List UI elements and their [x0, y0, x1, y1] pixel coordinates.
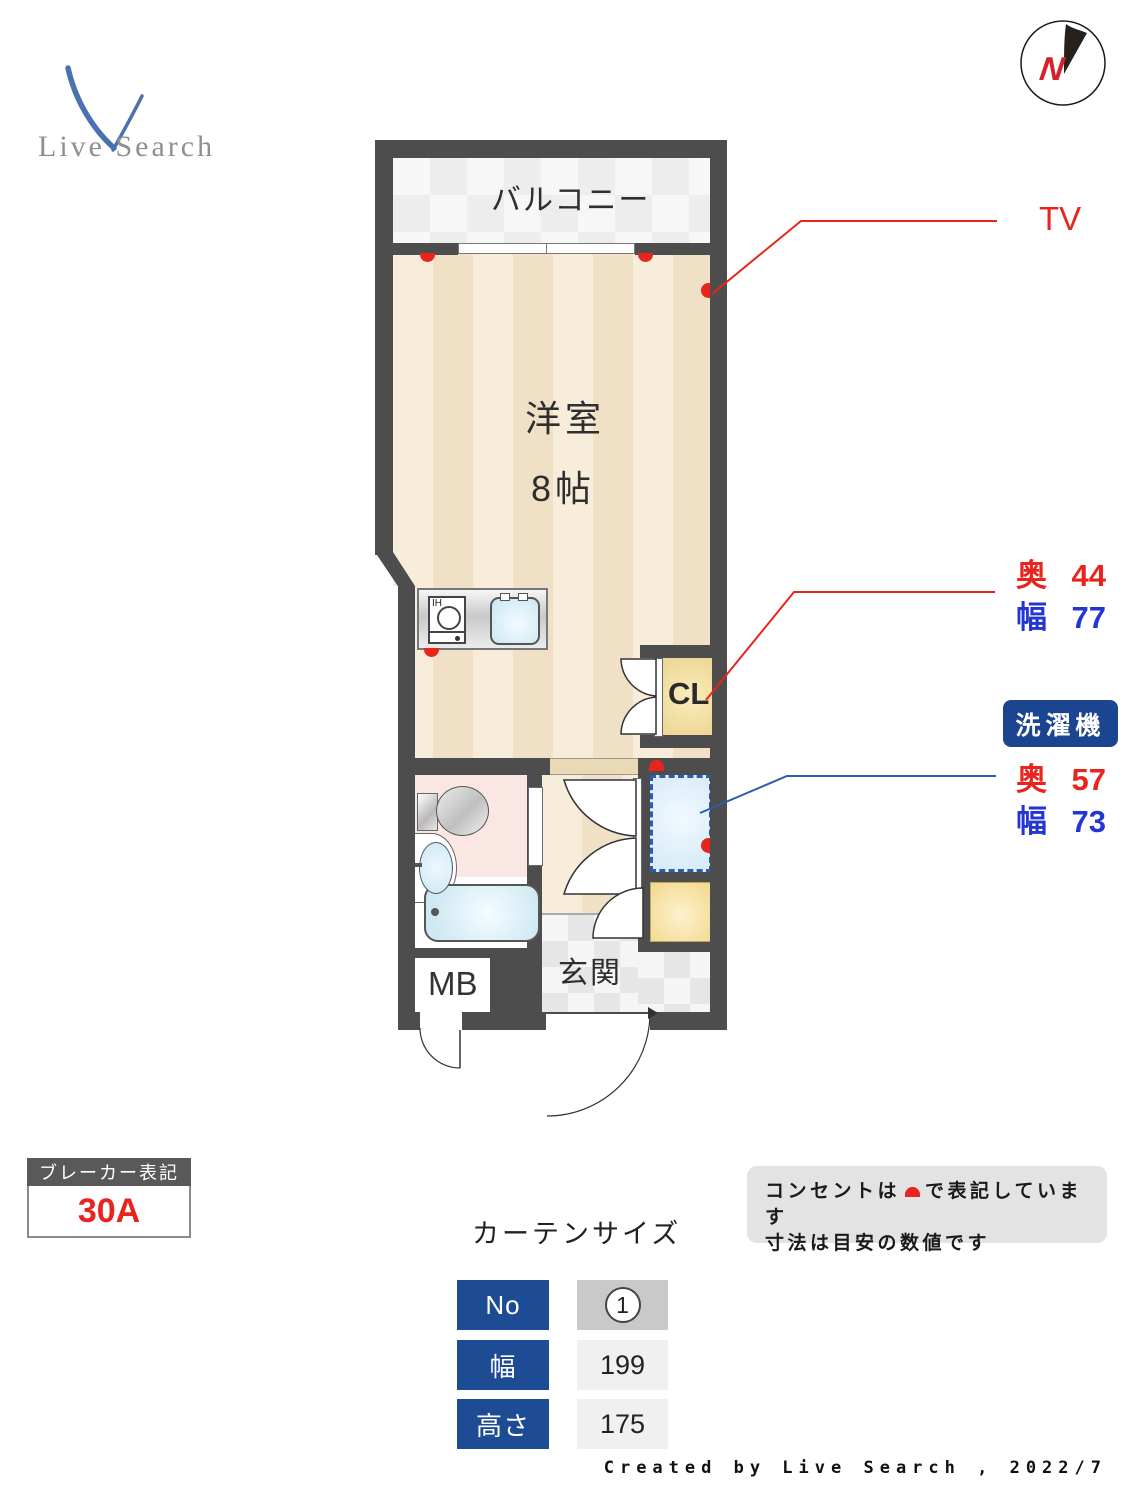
hallway-door-jamb — [633, 778, 642, 898]
toilet-tank — [417, 793, 438, 831]
note-line1-pre: コンセントは — [765, 1181, 900, 1202]
credit-line: Created by Live Search , 2022/7 — [604, 1458, 1107, 1478]
ih-label: IH — [432, 598, 442, 609]
meter-box-label: MB — [428, 965, 478, 1003]
floor-plan-page: Live Search N — [0, 0, 1125, 1500]
cased-opening — [550, 758, 638, 775]
compass: N — [1018, 18, 1108, 108]
washer-depth-label: 奥 — [1016, 764, 1047, 795]
curtain-row-no-label: No — [457, 1280, 549, 1330]
closet-door-jamb — [654, 658, 663, 737]
wall-bottom-2 — [462, 1012, 546, 1030]
outlet-icon — [649, 760, 664, 771]
ih-stove: IH — [428, 596, 466, 644]
washer-outlet-icon — [701, 838, 710, 853]
curtain-row-width-value: 199 — [577, 1340, 668, 1390]
closet-depth-row: 奥 44 — [1016, 560, 1106, 591]
wall-closet-top — [640, 645, 727, 658]
room-name-label: 洋室 — [525, 390, 605, 442]
washer-depth-value: 57 — [1072, 764, 1106, 795]
tv-label: TV — [1039, 200, 1081, 238]
entrance-label: 玄関 — [558, 948, 622, 992]
balcony-window-center-tick — [546, 243, 547, 254]
legend-note-line1: コンセントはで表記しています — [765, 1179, 1089, 1231]
basin-tap-icon — [415, 863, 422, 867]
legend-note-line2: 寸法は目安の数値です — [765, 1231, 1089, 1257]
bathtub-drain-icon — [431, 908, 439, 916]
front-door-swing-icon — [547, 1013, 650, 1116]
live-search-logo: Live Search — [36, 60, 246, 170]
washer-depth-row: 奥 57 — [1016, 764, 1106, 795]
entrance-step-line — [542, 913, 638, 915]
outlet-legend-icon — [905, 1187, 920, 1197]
hallway-floor — [542, 775, 638, 915]
curtain-row-width-label: 幅 — [457, 1340, 549, 1390]
sink-tap-icon — [500, 593, 510, 601]
wall-mb-right — [490, 950, 542, 1012]
shoe-cabinet — [650, 882, 712, 942]
closet-depth-label: 奥 — [1016, 560, 1047, 591]
curtain-row-height-label: 高さ — [457, 1399, 549, 1449]
washer-width-value: 73 — [1072, 806, 1106, 837]
sink-tap-icon — [518, 593, 528, 601]
breaker-box: ブレーカー表記 30A — [27, 1158, 191, 1240]
curtain-row-no-value: 1 — [577, 1280, 668, 1330]
entrance-tile-right — [638, 952, 712, 1012]
closet-width-row: 幅 77 — [1016, 602, 1106, 633]
breaker-title: ブレーカー表記 — [27, 1158, 191, 1186]
balcony-label: バルコニー — [491, 175, 650, 219]
curtain-row-height-value: 175 — [577, 1399, 668, 1449]
ih-drawer — [430, 631, 464, 642]
washer-width-label: 幅 — [1016, 806, 1047, 837]
closet-depth-value: 44 — [1072, 560, 1106, 591]
closet-leader-line — [706, 592, 995, 700]
curtain-title: カーテンサイズ — [472, 1212, 681, 1251]
toilet-bowl — [436, 786, 489, 836]
circled-number: 1 — [605, 1287, 641, 1323]
compass-north-label: N — [1037, 50, 1066, 88]
bathtub — [424, 884, 540, 942]
wall-left-lower — [398, 586, 415, 1030]
exterior-inset — [375, 586, 398, 1030]
washer-width-row: 幅 73 — [1016, 806, 1106, 837]
mb-door-swing-icon — [420, 1028, 460, 1068]
washbasin-bowl — [419, 842, 453, 894]
closet-label: CL — [668, 676, 709, 712]
ih-knob-icon — [455, 636, 460, 641]
wall-left-upper — [375, 140, 393, 555]
room-size-label: 8帖 — [531, 460, 595, 512]
washer-badge: 洗濯機 — [1003, 700, 1118, 747]
tv-leader-line — [712, 221, 997, 294]
closet-width-value: 77 — [1072, 602, 1106, 633]
washer-leader-line — [700, 776, 996, 813]
washing-machine-space — [650, 775, 712, 872]
kitchen-sink — [490, 597, 540, 645]
breaker-value: 30A — [27, 1186, 191, 1238]
wall-right — [710, 140, 727, 1030]
bathroom-door-jamb — [528, 787, 543, 866]
closet-width-label: 幅 — [1016, 602, 1047, 633]
logo-text: Live Search — [38, 130, 215, 164]
tv-outlet-icon — [701, 283, 710, 298]
wall-top — [375, 140, 727, 158]
ih-burner-icon — [437, 606, 461, 630]
legend-note: コンセントはで表記しています 寸法は目安の数値です — [747, 1166, 1107, 1243]
